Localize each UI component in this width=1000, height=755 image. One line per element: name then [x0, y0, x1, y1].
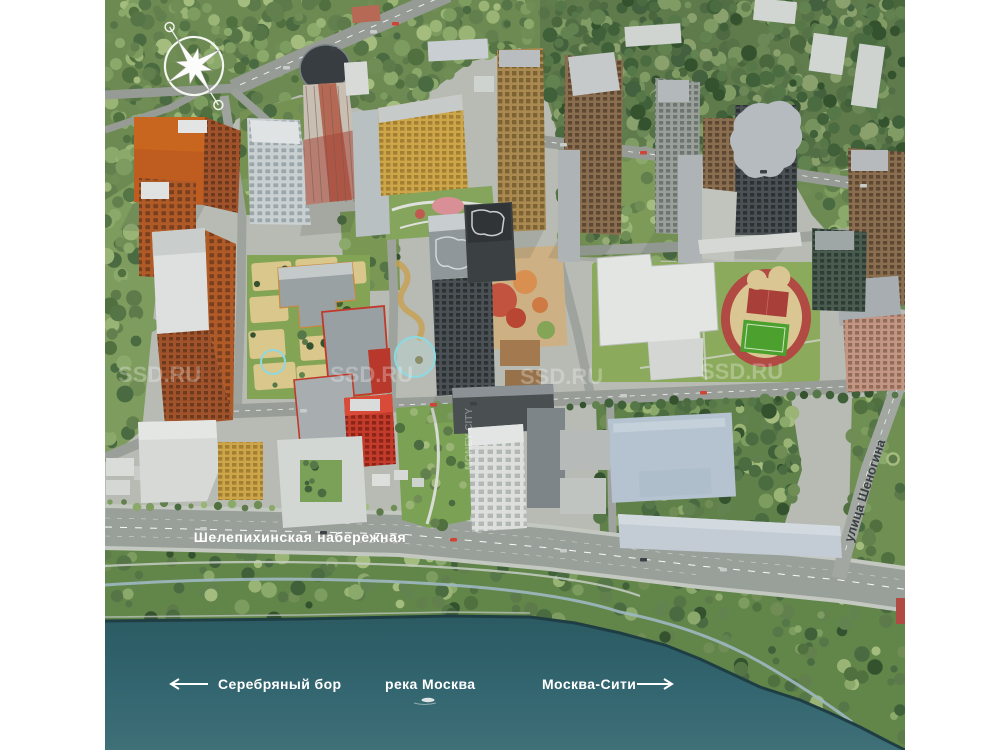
svg-text:река Москва: река Москва	[385, 676, 475, 692]
svg-text:MONEY CITY: MONEY CITY	[464, 408, 475, 470]
svg-text:SSD.RU: SSD.RU	[520, 364, 603, 389]
svg-text:SSD.RU: SSD.RU	[118, 362, 201, 387]
svg-text:Шелепихинская набережная: Шелепихинская набережная	[194, 529, 406, 545]
svg-text:Москва-Сити: Москва-Сити	[542, 676, 636, 692]
svg-text:Серебряный бор: Серебряный бор	[218, 676, 342, 692]
svg-text:SSD.RU: SSD.RU	[330, 362, 413, 387]
svg-text:SSD.RU: SSD.RU	[700, 359, 783, 384]
